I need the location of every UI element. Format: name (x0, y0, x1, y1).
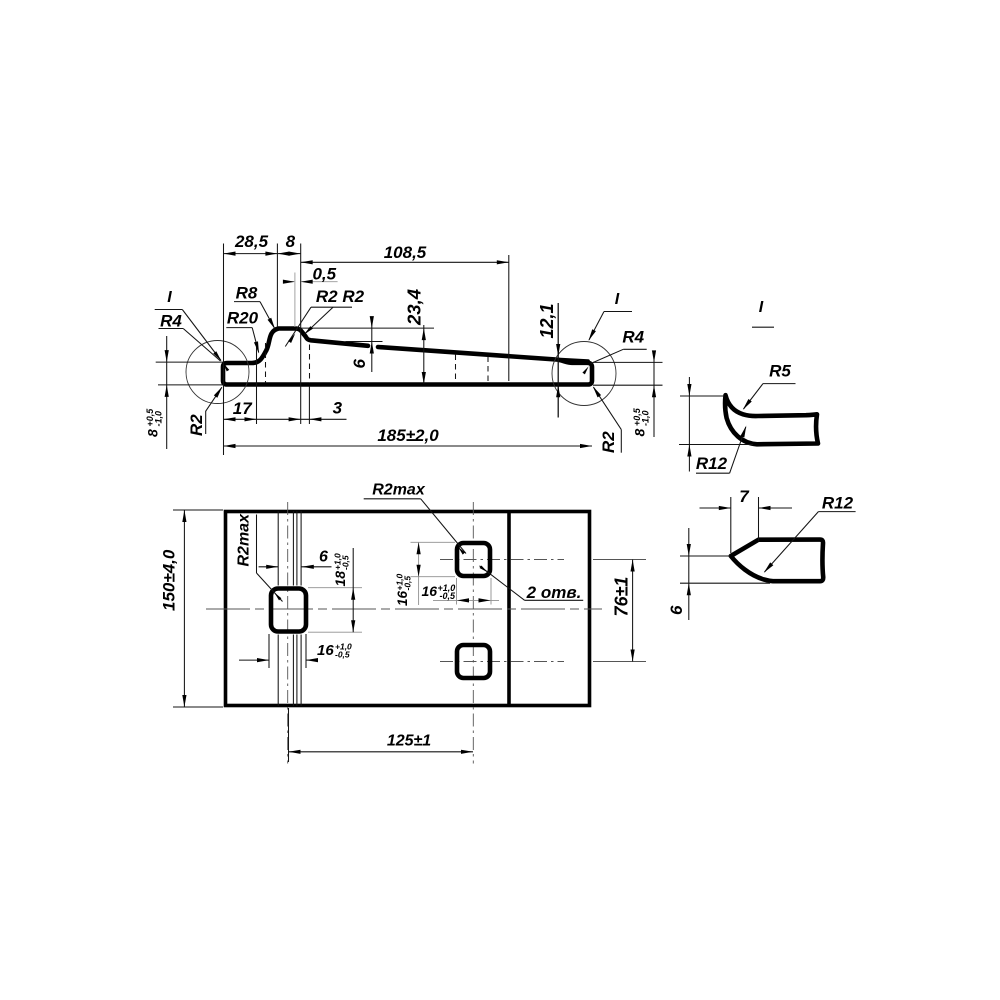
svg-text:R20: R20 (227, 309, 259, 328)
svg-text:-0,5: -0,5 (440, 591, 457, 601)
svg-text:6: 6 (350, 359, 369, 369)
svg-text:R4: R4 (622, 328, 644, 347)
svg-text:-0,5: -0,5 (341, 555, 351, 570)
svg-text:16: 16 (317, 642, 334, 659)
svg-text:6: 6 (667, 605, 686, 615)
svg-text:R8: R8 (236, 284, 258, 303)
svg-text:16: 16 (422, 583, 438, 599)
svg-text:-0,5: -0,5 (335, 650, 350, 660)
svg-text:R2: R2 (599, 431, 618, 453)
svg-text:R5: R5 (769, 362, 791, 381)
svg-text:12,1: 12,1 (537, 303, 557, 338)
svg-text:8: 8 (286, 232, 296, 251)
svg-text:-1,0: -1,0 (641, 410, 651, 426)
svg-text:108,5: 108,5 (384, 243, 427, 262)
svg-text:23,4: 23,4 (404, 289, 425, 326)
svg-text:I: I (615, 291, 620, 308)
svg-text:0,5: 0,5 (312, 265, 336, 284)
svg-text:3: 3 (333, 399, 343, 418)
svg-text:18: 18 (332, 571, 348, 587)
svg-text:-0,5: -0,5 (403, 576, 413, 591)
svg-text:-1,0: -1,0 (154, 411, 164, 427)
svg-text:8: 8 (145, 429, 161, 437)
svg-text:R2 R2: R2 R2 (316, 287, 365, 306)
svg-text:185±2,0: 185±2,0 (377, 426, 439, 445)
svg-text:R2: R2 (187, 414, 206, 436)
svg-text:125±1: 125±1 (387, 733, 431, 750)
svg-text:R2max: R2max (236, 513, 253, 567)
svg-text:150±4,0: 150±4,0 (160, 549, 179, 611)
svg-text:R12: R12 (822, 494, 854, 513)
svg-text:7: 7 (739, 487, 750, 506)
svg-text:28,5: 28,5 (234, 232, 269, 251)
svg-text:I: I (167, 289, 172, 306)
svg-text:R2max: R2max (372, 482, 426, 499)
svg-text:R12: R12 (696, 454, 728, 473)
svg-text:76±1: 76±1 (612, 577, 632, 617)
svg-text:16: 16 (395, 590, 410, 606)
svg-text:6: 6 (319, 549, 328, 566)
svg-text:8: 8 (632, 429, 648, 437)
svg-text:R4: R4 (160, 312, 182, 331)
svg-text:17: 17 (233, 399, 253, 418)
svg-text:2 отв.: 2 отв. (526, 583, 582, 602)
svg-text:I: I (759, 299, 764, 316)
